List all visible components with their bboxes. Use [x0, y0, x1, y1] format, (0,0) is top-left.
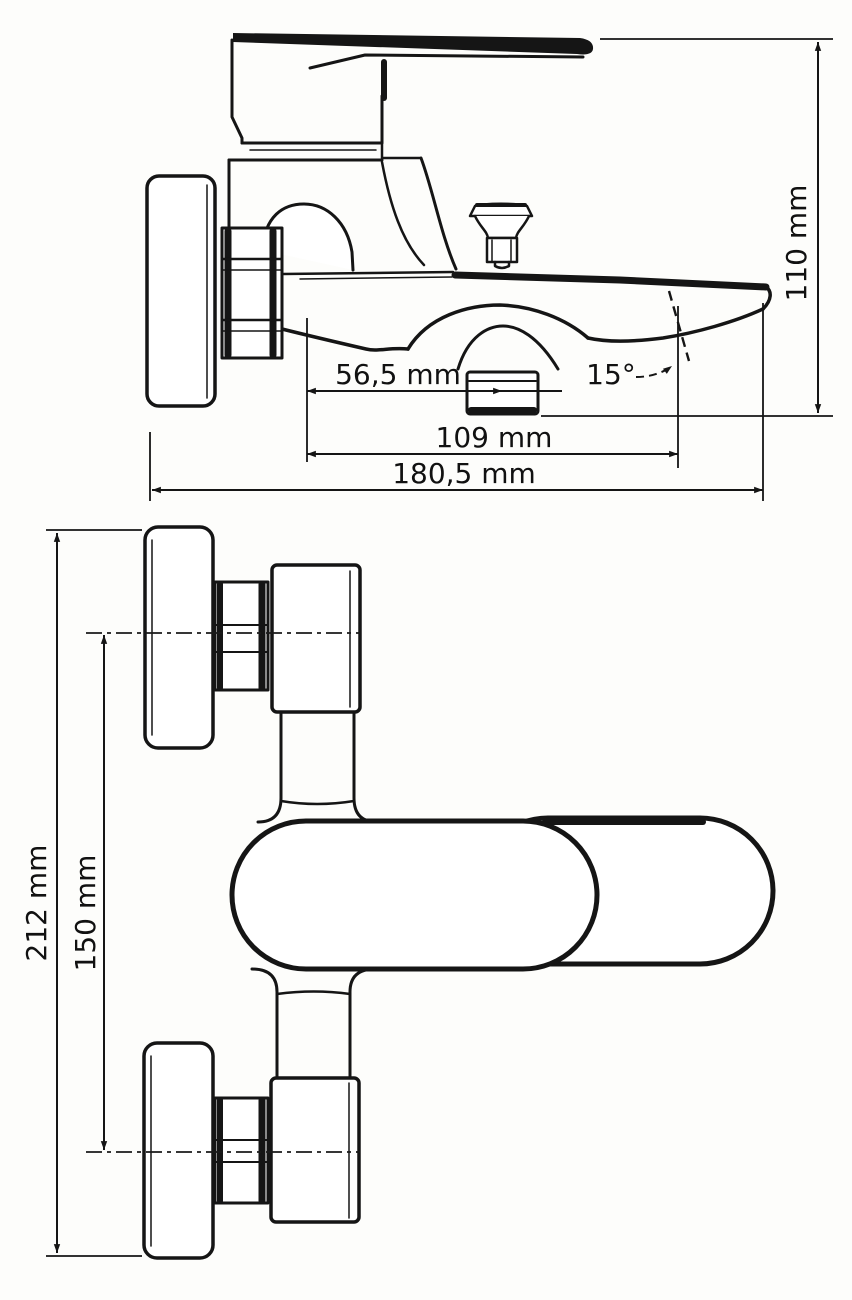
front-lower-body [271, 1078, 359, 1222]
front-view-dimensions: 212 mm 150 mm [20, 530, 142, 1256]
dim-angle-label: 15° [586, 358, 636, 391]
front-lower-escutcheon [144, 1043, 213, 1258]
dim-connection-spacing-label: 150 mm [69, 855, 102, 972]
dim-overall-height-label: 212 mm [20, 845, 53, 962]
front-upper-body [272, 565, 360, 712]
side-hex-nut [222, 228, 282, 358]
side-view: 110 mm 56,5 mm 15° 109 mm 180,5 mm [147, 33, 833, 501]
front-body-pill [232, 821, 597, 969]
dim-spout-offset-label: 56,5 mm [335, 358, 461, 391]
front-upper-neck [258, 712, 377, 822]
side-escutcheon [147, 176, 215, 406]
faucet-dimension-drawing: 110 mm 56,5 mm 15° 109 mm 180,5 mm [0, 0, 852, 1300]
aerator [467, 372, 538, 414]
technical-drawing-page: 110 mm 56,5 mm 15° 109 mm 180,5 mm [0, 0, 852, 1300]
handle-lever-bar [233, 33, 593, 54]
dim-overall-depth-label: 180,5 mm [392, 457, 536, 490]
spout-top-edge [455, 275, 766, 287]
front-upper-hex-nut [215, 582, 268, 690]
front-lower-neck [252, 969, 375, 1078]
dim-height-label: 110 mm [780, 185, 813, 302]
spout-arch-inner [458, 326, 558, 369]
front-lower-hex-nut [215, 1098, 268, 1203]
front-lower-connection [144, 1043, 359, 1258]
spout-underside-left [282, 329, 408, 350]
diverter-knob [470, 204, 532, 268]
front-upper-escutcheon [145, 527, 213, 748]
dim-reach-label: 109 mm [436, 421, 553, 454]
spout-shoulder-outer [421, 158, 456, 269]
front-view: 212 mm 150 mm [20, 527, 773, 1258]
front-upper-connection [145, 527, 360, 748]
spout-shoulder-inner [382, 162, 424, 265]
